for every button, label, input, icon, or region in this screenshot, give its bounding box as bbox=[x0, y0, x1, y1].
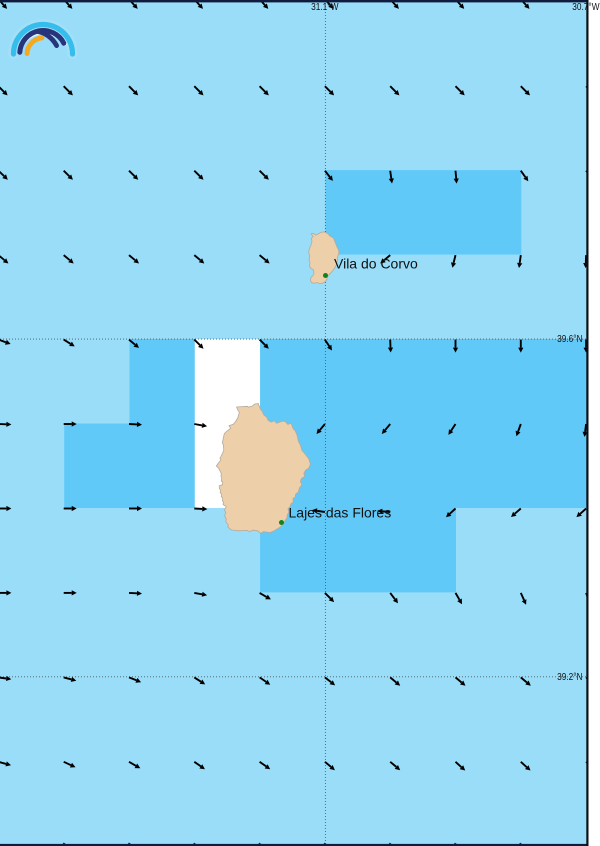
svg-text:Vila do Corvo: Vila do Corvo bbox=[334, 255, 418, 271]
svg-text:30.7°W: 30.7°W bbox=[572, 2, 600, 13]
svg-text:39.6°N: 39.6°N bbox=[557, 334, 582, 345]
svg-text:Lajes das Flores: Lajes das Flores bbox=[289, 505, 392, 521]
svg-text:39.2°N: 39.2°N bbox=[557, 672, 582, 683]
svg-text:31.1°W: 31.1°W bbox=[311, 2, 339, 13]
